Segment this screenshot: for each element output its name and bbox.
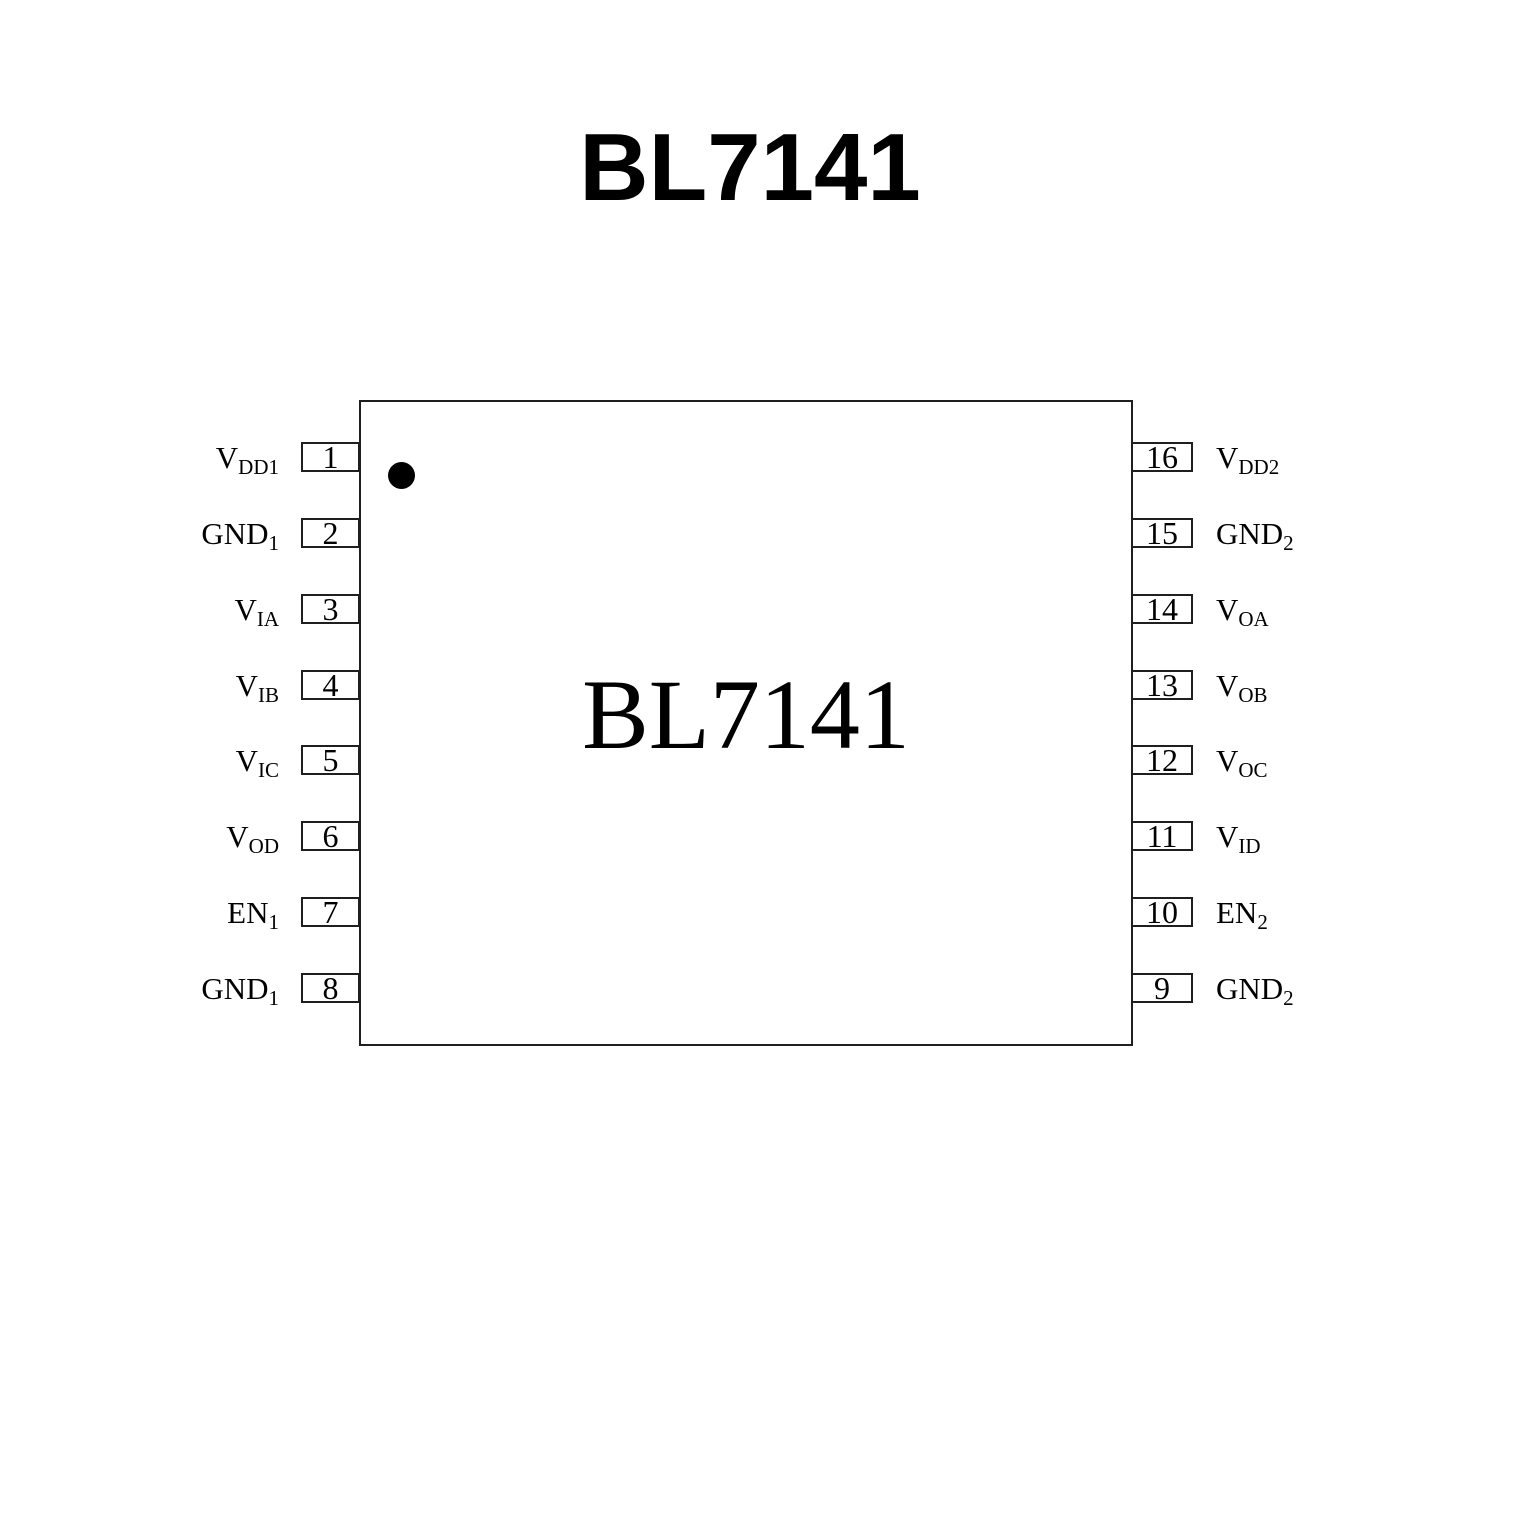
pin-box-14: 14	[1131, 594, 1193, 624]
pin-label-base-16: V	[1216, 440, 1238, 475]
pin-number-11: 11	[1147, 823, 1178, 850]
chip-label: BL7141	[359, 660, 1133, 770]
pin-box-5: 5	[301, 745, 360, 775]
pin-label-13: VOB	[1216, 670, 1535, 700]
pin-label-base-15: GND	[1216, 516, 1283, 551]
pin-label-subscript-5: IC	[258, 758, 279, 782]
pin-number-4: 4	[323, 672, 339, 699]
pin-label-subscript-14: OA	[1238, 607, 1268, 631]
pin-label-subscript-10: 2	[1257, 910, 1268, 934]
pin-label-subscript-6: OD	[249, 834, 279, 858]
pin-label-6: VOD	[0, 821, 279, 851]
pin-label-base-7: EN	[227, 895, 268, 930]
pin-label-base-4: V	[236, 668, 258, 703]
pin-label-11: VID	[1216, 821, 1535, 851]
pin-number-12: 12	[1146, 747, 1178, 774]
pin-label-subscript-13: OB	[1238, 683, 1267, 707]
pin-number-14: 14	[1146, 596, 1178, 623]
pin-label-14: VOA	[1216, 594, 1535, 624]
pin-label-15: GND2	[1216, 518, 1535, 548]
pin-number-3: 3	[323, 596, 339, 623]
pin-label-subscript-15: 2	[1283, 531, 1294, 555]
pin-box-12: 12	[1131, 745, 1193, 775]
pin-label-base-10: EN	[1216, 895, 1257, 930]
pin-number-5: 5	[323, 747, 339, 774]
pin-label-5: VIC	[0, 745, 279, 775]
pin-box-6: 6	[301, 821, 360, 851]
pin-number-8: 8	[323, 975, 339, 1002]
pin-label-subscript-2: 1	[269, 531, 280, 555]
pin-label-base-8: GND	[201, 971, 268, 1006]
pin-label-3: VIA	[0, 594, 279, 624]
pin-box-4: 4	[301, 670, 360, 700]
pin-box-9: 9	[1131, 973, 1193, 1003]
pin-number-16: 16	[1146, 444, 1178, 471]
pin-box-16: 16	[1131, 442, 1193, 472]
pin1-indicator-dot	[388, 462, 415, 489]
pin-label-12: VOC	[1216, 745, 1535, 775]
pin-box-2: 2	[301, 518, 360, 548]
pin-number-9: 9	[1154, 975, 1170, 1002]
pin-label-subscript-12: OC	[1238, 758, 1267, 782]
pin-label-subscript-11: ID	[1238, 834, 1260, 858]
pin-label-4: VIB	[0, 670, 279, 700]
datasheet-page: BL7141 BL7141 1VDD12GND13VIA4VIB5VIC6VOD…	[0, 0, 1535, 1535]
pin-number-7: 7	[323, 899, 339, 926]
pin-label-base-1: V	[216, 440, 238, 475]
pin-label-base-6: V	[226, 819, 248, 854]
pin-number-10: 10	[1146, 899, 1178, 926]
pin-label-base-12: V	[1216, 743, 1238, 778]
pin-label-10: EN2	[1216, 897, 1535, 927]
pin-label-base-14: V	[1216, 592, 1238, 627]
pin-label-subscript-1: DD1	[238, 455, 279, 479]
pin-label-7: EN1	[0, 897, 279, 927]
pin-box-3: 3	[301, 594, 360, 624]
pin-number-2: 2	[323, 520, 339, 547]
pin-label-subscript-7: 1	[269, 910, 280, 934]
pin-label-subscript-3: IA	[257, 607, 279, 631]
pin-box-13: 13	[1131, 670, 1193, 700]
pin-box-15: 15	[1131, 518, 1193, 548]
pin-label-subscript-16: DD2	[1238, 455, 1279, 479]
pin-box-8: 8	[301, 973, 360, 1003]
pin-label-subscript-9: 2	[1283, 986, 1294, 1010]
pin-label-16: VDD2	[1216, 442, 1535, 472]
pin-number-13: 13	[1146, 672, 1178, 699]
pin-label-subscript-8: 1	[269, 986, 280, 1010]
pin-label-8: GND1	[0, 973, 279, 1003]
pin-label-base-3: V	[234, 592, 256, 627]
pin-box-10: 10	[1131, 897, 1193, 927]
pin-label-base-5: V	[236, 743, 258, 778]
pin-label-base-2: GND	[201, 516, 268, 551]
page-title: BL7141	[0, 118, 1500, 218]
pin-label-1: VDD1	[0, 442, 279, 472]
pin-label-9: GND2	[1216, 973, 1535, 1003]
pin-label-base-13: V	[1216, 668, 1238, 703]
pin-box-11: 11	[1131, 821, 1193, 851]
pin-number-1: 1	[323, 444, 339, 471]
pin-number-6: 6	[323, 823, 339, 850]
pin-label-base-9: GND	[1216, 971, 1283, 1006]
pin-label-subscript-4: IB	[258, 683, 279, 707]
pin-number-15: 15	[1146, 520, 1178, 547]
pin-box-1: 1	[301, 442, 360, 472]
pin-box-7: 7	[301, 897, 360, 927]
pin-label-base-11: V	[1216, 819, 1238, 854]
pin-label-2: GND1	[0, 518, 279, 548]
